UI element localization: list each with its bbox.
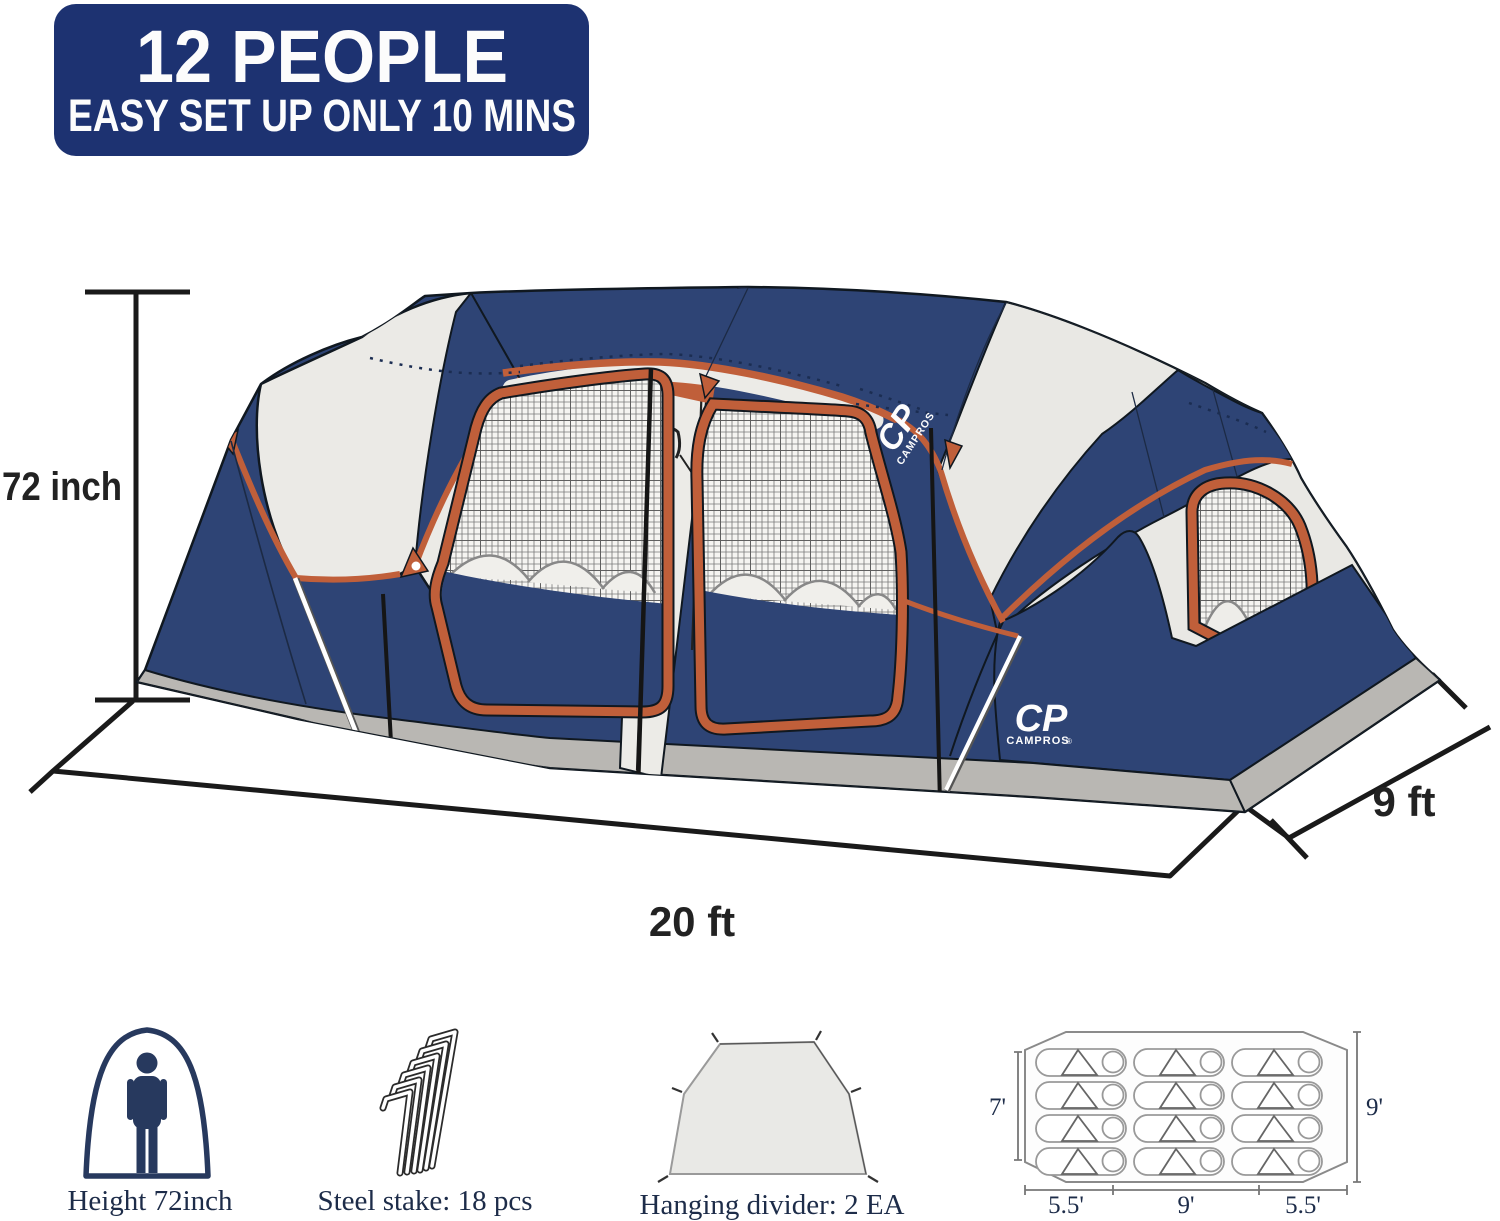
svg-text:CP: CP <box>1015 698 1068 740</box>
svg-text:20 ft: 20 ft <box>649 898 735 945</box>
svg-text:9': 9' <box>1177 1192 1194 1219</box>
svg-text:EASY SET UP ONLY 10 MINS: EASY SET UP ONLY 10 MINS <box>68 90 576 141</box>
svg-text:CAMPROS: CAMPROS <box>1006 735 1069 747</box>
svg-text:5.5': 5.5' <box>1285 1192 1321 1219</box>
svg-text:®: ® <box>1066 737 1072 746</box>
svg-text:9 ft: 9 ft <box>1373 778 1436 825</box>
svg-text:7': 7' <box>989 1094 1006 1121</box>
svg-text:72 inch: 72 inch <box>2 465 122 509</box>
svg-text:5.5': 5.5' <box>1048 1192 1084 1219</box>
svg-text:Steel stake: 18 pcs: Steel stake: 18 pcs <box>317 1185 532 1217</box>
svg-text:Hanging divider: 2 EA: Hanging divider: 2 EA <box>640 1189 905 1221</box>
svg-text:12 PEOPLE: 12 PEOPLE <box>136 15 508 98</box>
svg-text:Height 72inch: Height 72inch <box>67 1185 233 1217</box>
svg-text:9': 9' <box>1366 1094 1383 1121</box>
